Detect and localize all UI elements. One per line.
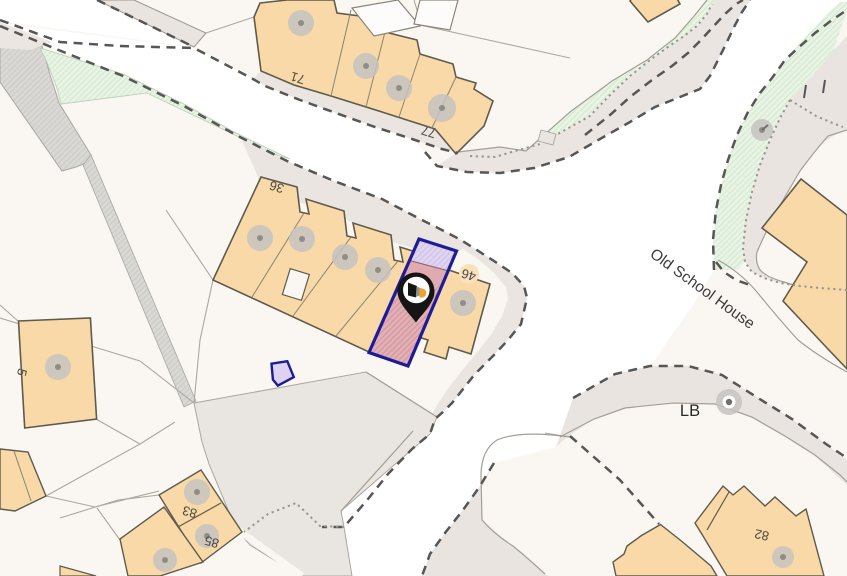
svg-text:82: 82 — [753, 526, 770, 544]
svg-text:LB: LB — [680, 402, 700, 420]
